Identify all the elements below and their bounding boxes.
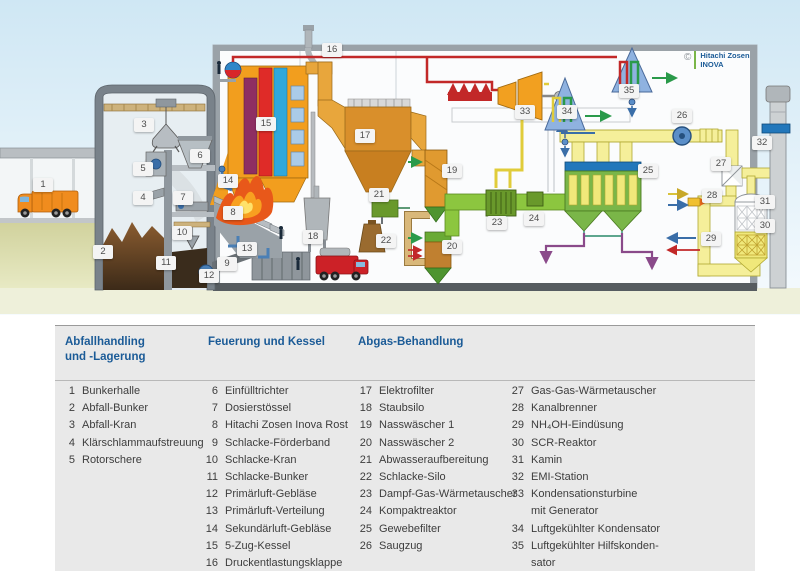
legend-item-number: 21 (355, 452, 372, 469)
legend-item-number: 20 (355, 435, 372, 452)
legend-header-waste-handling: Abfallhandling und -Lagerung (65, 335, 146, 364)
legend-item-number: 16 (201, 555, 218, 572)
legend-item: 4Klärschlammaufstreuung (65, 435, 204, 452)
legend-item-label: Schlacke-Förderband (225, 435, 330, 452)
legend-item-number: 23 (355, 486, 372, 503)
legend-item-label: Schlacke-Silo (379, 469, 446, 486)
compact-reactor (527, 192, 543, 206)
legend-item-number: 12 (201, 486, 218, 503)
legend-item-number: 14 (201, 521, 218, 538)
legend-item-number: 5 (65, 452, 75, 469)
legend-item-number: 6 (201, 383, 218, 400)
legend-item: 33Kondensationsturbine mit Generator (507, 486, 660, 520)
legend-item: 25Gewebefilter (355, 521, 517, 538)
legend-item: 20Nasswäscher 2 (355, 435, 517, 452)
legend-item-number: 19 (355, 417, 372, 434)
legend-item: 7Dosierstössel (201, 400, 348, 417)
legend-item-label: Dosierstössel (225, 400, 291, 417)
brand-name: Hitachi Zosen INOVA (700, 51, 749, 69)
legend-item: 35Luftgekühlter Hilfskonden- sator (507, 538, 660, 572)
legend-item: 11Schlacke-Bunker (201, 469, 348, 486)
legend-item-number: 17 (355, 383, 372, 400)
legend-item: 17Elektrofilter (355, 383, 517, 400)
legend-item: 8Hitachi Zosen Inova Rost (201, 417, 348, 434)
legend-item-number: 13 (201, 503, 218, 520)
legend-item: 31Kamin (507, 452, 660, 469)
legend-item: 24Kompaktreaktor (355, 503, 517, 520)
legend-item-number: 35 (507, 538, 524, 572)
legend-item-number: 9 (201, 435, 218, 452)
legend-column-1: 1Bunkerhalle2Abfall-Bunker3Abfall-Kran4K… (65, 383, 204, 469)
legend-item-label: Gewebefilter (379, 521, 441, 538)
plant-diagram-art (0, 0, 800, 315)
rotor-shear (146, 152, 166, 176)
legend-item: 9Schlacke-Förderband (201, 435, 348, 452)
legend-item: 18Staubsilo (355, 400, 517, 417)
legend-item-label: Rotorschere (82, 452, 142, 469)
legend-item-label: Kamin (531, 452, 562, 469)
legend-item: 21Abwasseraufbereitung (355, 452, 517, 469)
legend-item: 2Abfall-Bunker (65, 400, 204, 417)
legend-item-label: NH₄OH-Eindüsung (531, 417, 624, 434)
legend-item-label: Kompaktreaktor (379, 503, 457, 520)
legend-item-label: Sekundärluft-Gebläse (225, 521, 331, 538)
legend-item-label: Klärschlammaufstreuung (82, 435, 204, 452)
legend-item: 1Bunkerhalle (65, 383, 204, 400)
legend-item: 13Primärluft-Verteilung (201, 503, 348, 520)
legend-item-label: Schlacke-Kran (225, 452, 297, 469)
legend-item: 155-Zug-Kessel (201, 538, 348, 555)
legend-item-label: Kondensationsturbine mit Generator (531, 486, 637, 520)
legend-item: 30SCR-Reaktor (507, 435, 660, 452)
primary-air-blower (199, 265, 213, 279)
legend-item-label: Kanalbrenner (531, 400, 597, 417)
legend-item-number: 4 (65, 435, 75, 452)
induced-draft-fan (673, 127, 691, 145)
legend-item-number: 29 (507, 417, 524, 434)
legend-column-2: 6Einfülltrichter7Dosierstössel8Hitachi Z… (201, 383, 348, 572)
legend-item-label: Druckentlastungsklappe (225, 555, 342, 572)
logo-green-bar-icon (694, 51, 696, 69)
legend-item: 6Einfülltrichter (201, 383, 348, 400)
legend-item-label: Nasswäscher 1 (379, 417, 454, 434)
legend-item-number: 11 (201, 469, 218, 486)
legend-item-label: Dampf-Gas-Wärmetauscher (379, 486, 517, 503)
legend-item-label: Abwasseraufbereitung (379, 452, 488, 469)
legend-item: 16Druckentlastungsklappe (201, 555, 348, 572)
legend-item: 29NH₄OH-Eindüsung (507, 417, 660, 434)
legend-item-number: 7 (201, 400, 218, 417)
legend-item: 22Schlacke-Silo (355, 469, 517, 486)
legend-item: 5Rotorschere (65, 452, 204, 469)
legend-column-4: 27Gas-Gas-Wärmetauscher28Kanalbrenner29N… (507, 383, 660, 572)
legend-item: 19Nasswäscher 1 (355, 417, 517, 434)
legend-item-label: Bunkerhalle (82, 383, 140, 400)
legend-item: 34Luftgekühlter Kondensator (507, 521, 660, 538)
legend-item-label: EMI-Station (531, 469, 588, 486)
legend-item-label: Luftgekühlter Kondensator (531, 521, 660, 538)
legend-item: 26Saugzug (355, 538, 517, 555)
legend-item-number: 25 (355, 521, 372, 538)
legend-item-number: 24 (355, 503, 372, 520)
dosing-ram (176, 202, 208, 211)
legend-item-label: Saugzug (379, 538, 422, 555)
legend-item-label: Elektrofilter (379, 383, 434, 400)
legend-item-label: Abfall-Kran (82, 417, 136, 434)
legend-item-label: Luftgekühlter Hilfskonden- sator (531, 538, 659, 572)
legend-item-label: 5-Zug-Kessel (225, 538, 290, 555)
legend-item-number: 27 (507, 383, 524, 400)
legend-item-number: 1 (65, 383, 75, 400)
legend-item-label: Staubsilo (379, 400, 424, 417)
legend-item-label: Schlacke-Bunker (225, 469, 308, 486)
scr-reactor (735, 194, 767, 272)
legend-item-label: Primärluft-Gebläse (225, 486, 317, 503)
legend-item-number: 32 (507, 469, 524, 486)
legend-item-number: 8 (201, 417, 218, 434)
legend-item-number: 30 (507, 435, 524, 452)
legend-item-number: 2 (65, 400, 75, 417)
legend-item-number: 15 (201, 538, 218, 555)
plant-diagram: 1234567891011121314151617181920212223242… (0, 0, 800, 315)
legend-item-label: Gas-Gas-Wärmetauscher (531, 383, 656, 400)
legend-item-label: Hitachi Zosen Inova Rost (225, 417, 348, 434)
legend-item-number: 34 (507, 521, 524, 538)
legend-column-3: 17Elektrofilter18Staubsilo19Nasswäscher … (355, 383, 517, 555)
legend-item-label: SCR-Reaktor (531, 435, 596, 452)
copyright-icon: © (684, 53, 691, 63)
legend-item-label: Abfall-Bunker (82, 400, 148, 417)
legend-item-label: Primärluft-Verteilung (225, 503, 325, 520)
legend-item-number: 3 (65, 417, 75, 434)
legend-item-number: 33 (507, 486, 524, 520)
legend-item: 10Schlacke-Kran (201, 452, 348, 469)
legend-item: 23Dampf-Gas-Wärmetauscher (355, 486, 517, 503)
legend-item-label: Einfülltrichter (225, 383, 289, 400)
legend-item: 3Abfall-Kran (65, 417, 204, 434)
legend-header-firing-boiler: Feuerung und Kessel (208, 335, 325, 350)
legend-item-number: 26 (355, 538, 372, 555)
duct-silencer (700, 129, 718, 142)
legend-item-label: Nasswäscher 2 (379, 435, 454, 452)
legend-item: 32EMI-Station (507, 469, 660, 486)
waste-to-energy-plant-infographic: 1234567891011121314151617181920212223242… (0, 0, 800, 581)
legend-item-number: 18 (355, 400, 372, 417)
legend-separator (55, 380, 755, 381)
legend-item: 12Primärluft-Gebläse (201, 486, 348, 503)
legend-item-number: 28 (507, 400, 524, 417)
legend-item: 14Sekundärluft-Gebläse (201, 521, 348, 538)
brand-logo: © Hitachi Zosen INOVA (684, 51, 750, 69)
legend-header-flue-gas-treatment: Abgas-Behandlung (358, 335, 463, 350)
legend-item: 27Gas-Gas-Wärmetauscher (507, 383, 660, 400)
legend-item-number: 22 (355, 469, 372, 486)
legend-item-number: 10 (201, 452, 218, 469)
legend-panel: Abfallhandling und -Lagerung Feuerung un… (55, 325, 755, 571)
legend-item-number: 31 (507, 452, 524, 469)
legend-item: 28Kanalbrenner (507, 400, 660, 417)
